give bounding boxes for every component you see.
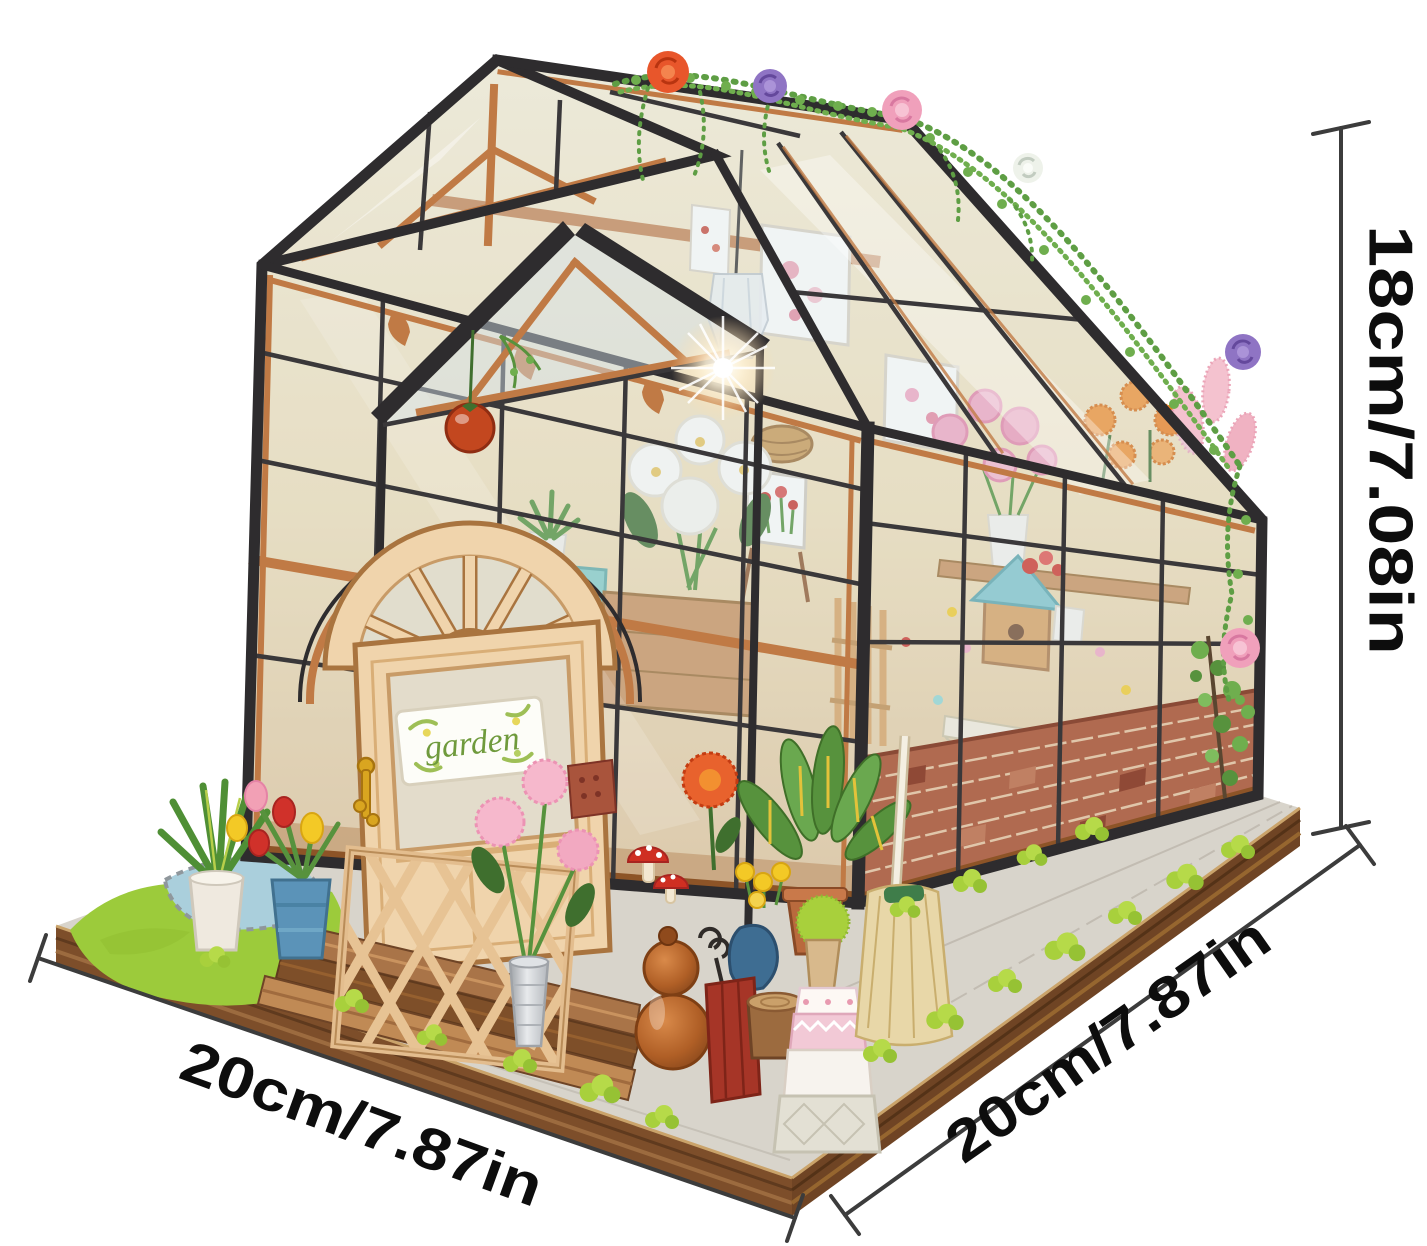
dimension-label-height: 18cm/7.08in [1356,225,1425,655]
mini-brick-stack [568,760,616,818]
product-photo: garden [0,0,1427,1246]
lamp-flare [671,316,775,420]
greenhouse-illustration: garden [0,0,1427,1246]
carved-box [774,1096,880,1152]
